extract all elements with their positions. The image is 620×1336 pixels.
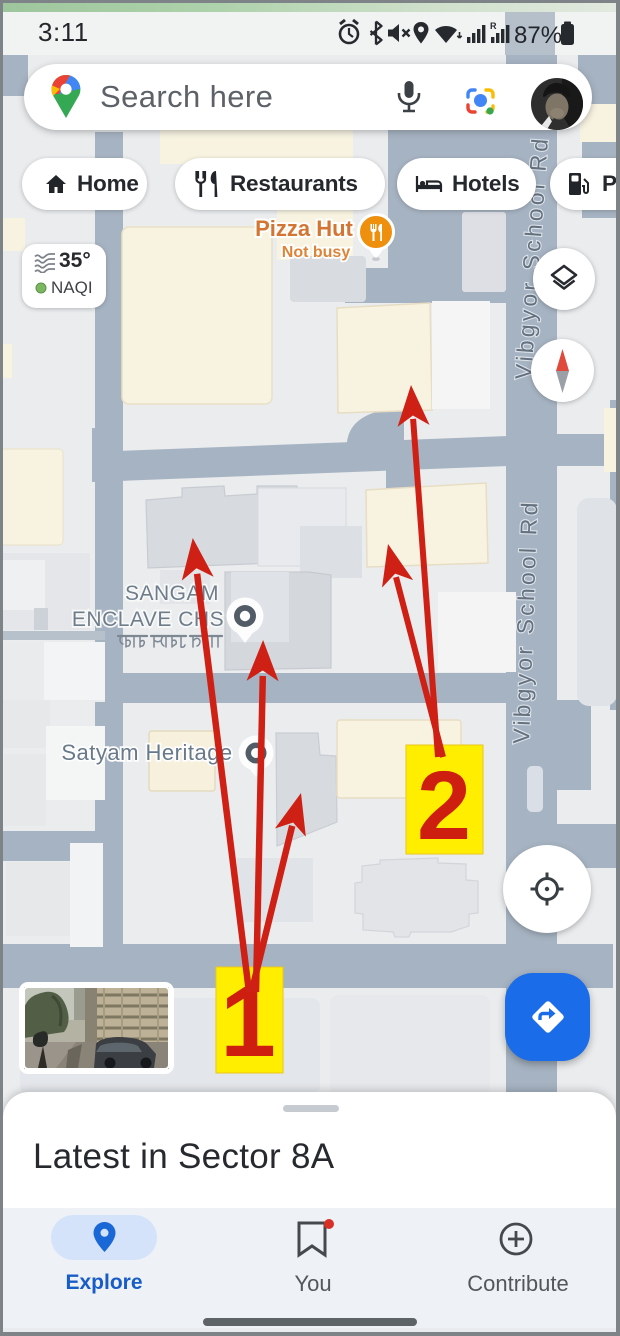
svg-text:87%: 87% [514,22,562,49]
svg-text:Pizza Hut: Pizza Hut [255,216,353,241]
svg-text:Satyam Heritage: Satyam Heritage [61,740,232,765]
svg-text:SANGAM: SANGAM [125,582,219,605]
svg-text:2: 2 [417,751,471,860]
svg-text:Not busy: Not busy [282,244,351,261]
svg-text:R: R [490,21,497,31]
